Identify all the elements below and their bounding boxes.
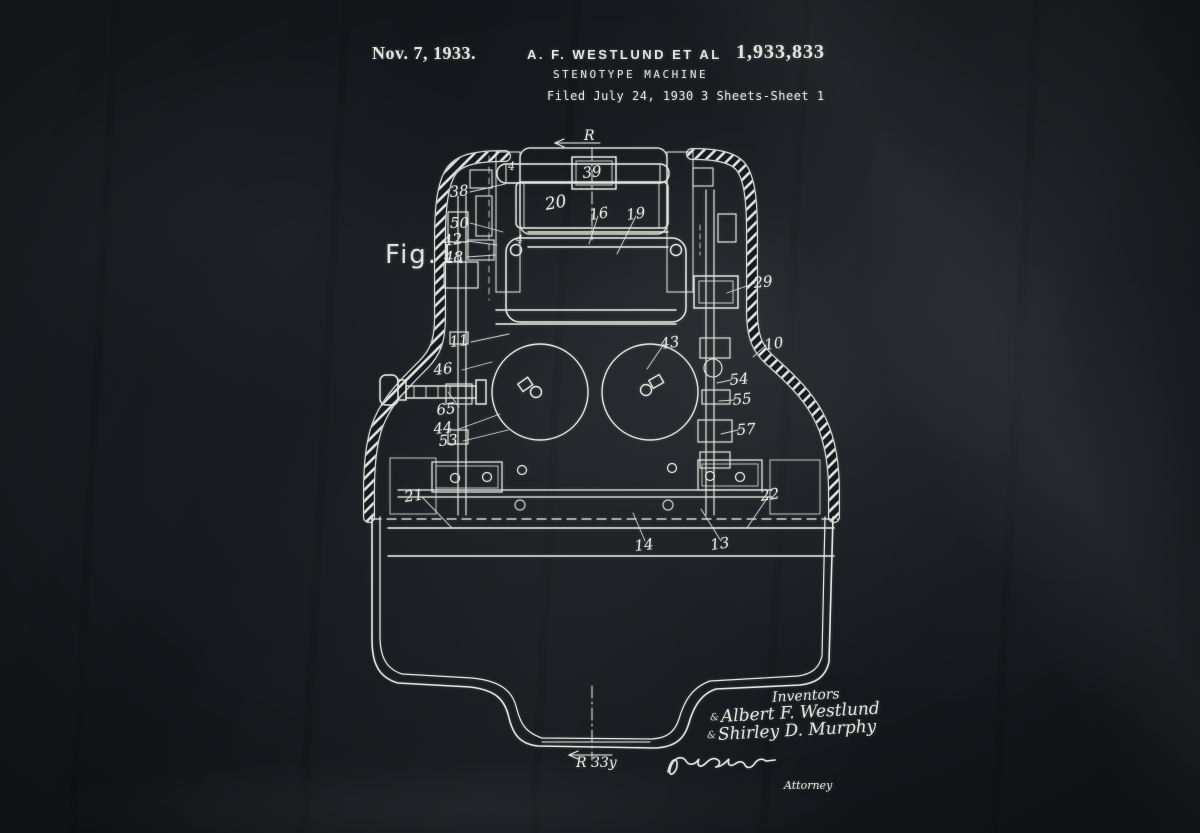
part-label-22: 22 — [758, 484, 780, 505]
part-label-14: 14 — [634, 535, 655, 555]
part-label-43: 43 — [658, 332, 680, 353]
part-label-13: 13 — [709, 533, 730, 553]
part-labels: 38 50 42 48 11 46 65 44 53 29 10 54 55 5… — [402, 128, 785, 771]
part-label-4b: 4 — [515, 233, 523, 246]
section-label-top: R — [583, 128, 595, 144]
part-label-4a: 4 — [507, 160, 515, 173]
part-label-19: 19 — [625, 203, 647, 224]
key-lever-frame — [390, 458, 820, 514]
part-label-46: 46 — [432, 359, 454, 379]
part-label-54: 54 — [729, 369, 750, 389]
keybed-band — [372, 519, 838, 556]
left-wheel — [492, 344, 588, 440]
part-label-16: 16 — [588, 203, 610, 224]
machine-linework — [369, 139, 838, 774]
part-label-11: 11 — [449, 331, 470, 351]
part-label-42: 42 — [441, 229, 463, 250]
section-label-bottom: R 33y — [575, 755, 618, 771]
attorney-label: Attorney — [784, 779, 832, 792]
part-label-21: 21 — [402, 485, 424, 506]
housing-band-left — [369, 156, 505, 517]
attorney-signature — [668, 758, 775, 774]
by-mark: & — [710, 712, 719, 723]
patent-drawing: 38 50 42 48 11 46 65 44 53 29 10 54 55 5… — [0, 0, 1200, 833]
part-label-55: 55 — [732, 389, 753, 409]
part-label-10: 10 — [763, 333, 785, 354]
part-label-38: 38 — [449, 181, 470, 201]
part-label-57: 57 — [736, 420, 757, 439]
right-mechanism-stack — [694, 190, 738, 515]
by-mark: & — [707, 730, 716, 741]
part-label-29: 29 — [752, 272, 774, 292]
part-label-48: 48 — [443, 248, 463, 266]
right-wheel — [602, 344, 698, 440]
part-label-53: 53 — [438, 431, 458, 450]
chalkboard-patent-poster: { "page": { "background": "#14171b", "ch… — [0, 0, 1200, 833]
part-label-65: 65 — [436, 399, 457, 419]
part-label-20: 20 — [542, 191, 568, 215]
part-label-39: 39 — [582, 162, 603, 182]
